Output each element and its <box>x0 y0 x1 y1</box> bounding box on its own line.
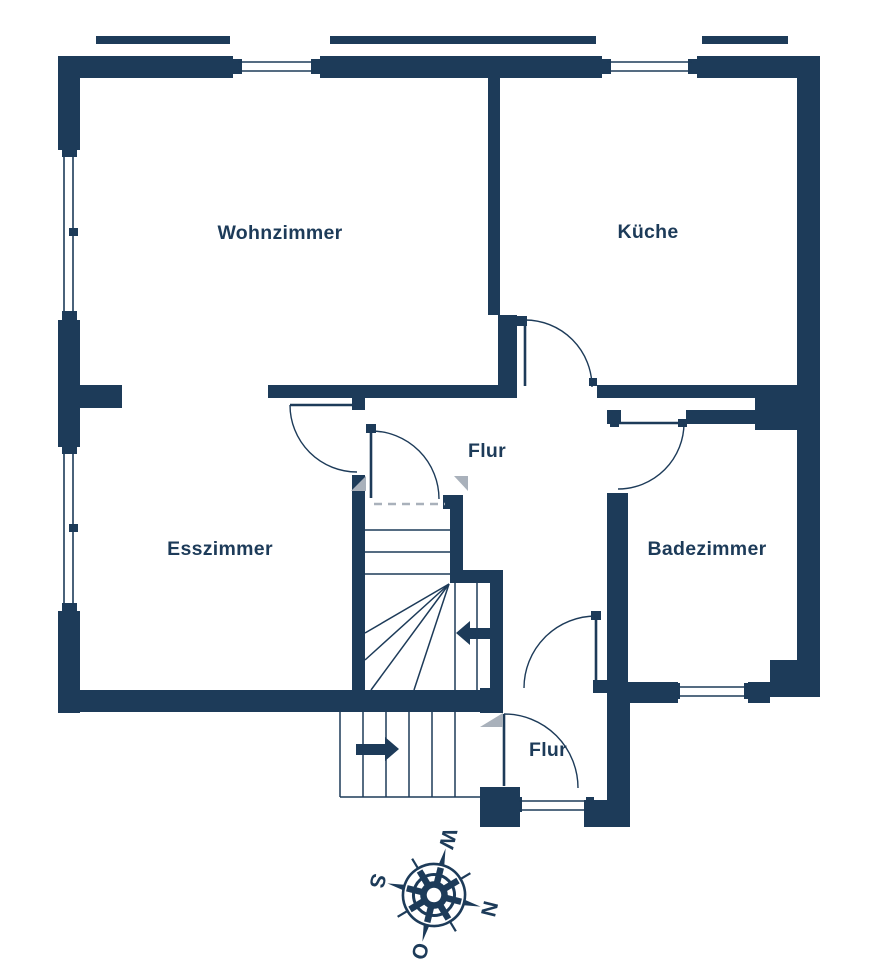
window-badezimmer-south <box>672 683 752 699</box>
door-flur-lower <box>524 616 596 688</box>
window-top-right <box>602 59 697 74</box>
door-badezimmer <box>614 423 684 489</box>
staircase-exterior <box>340 712 480 797</box>
staircase-interior <box>365 504 497 690</box>
room-label-wohnzimmer: Wohnzimmer <box>217 222 342 244</box>
floor-plan-canvas: Wohnzimmer Küche Flur Esszimmer Badezimm… <box>0 0 877 960</box>
window-left-upper <box>62 148 78 320</box>
room-label-flur-upper: Flur <box>468 440 506 462</box>
window-top-left <box>233 59 320 74</box>
floor-plan-page: Wohnzimmer Küche Flur Esszimmer Badezimm… <box>0 0 877 960</box>
room-label-badezimmer: Badezimmer <box>648 538 767 560</box>
upper-floor-crop-strip <box>96 36 788 44</box>
room-label-kueche: Küche <box>617 221 678 243</box>
compass-letter-o: O <box>406 940 432 960</box>
compass-letter-s: S <box>364 871 390 890</box>
door-kueche <box>525 320 592 387</box>
door-staircase <box>371 431 439 499</box>
door-esszimmer <box>290 405 357 472</box>
compass-letter-n: N <box>476 899 502 919</box>
window-left-lower <box>62 445 78 612</box>
room-label-flur-lower: Flur <box>529 739 567 761</box>
room-label-esszimmer: Esszimmer <box>167 538 273 560</box>
window-entrance-south <box>514 797 594 812</box>
walls <box>58 56 820 827</box>
compass-rose-icon: N O S W <box>350 812 516 960</box>
compass-letter-w: W <box>434 826 461 851</box>
